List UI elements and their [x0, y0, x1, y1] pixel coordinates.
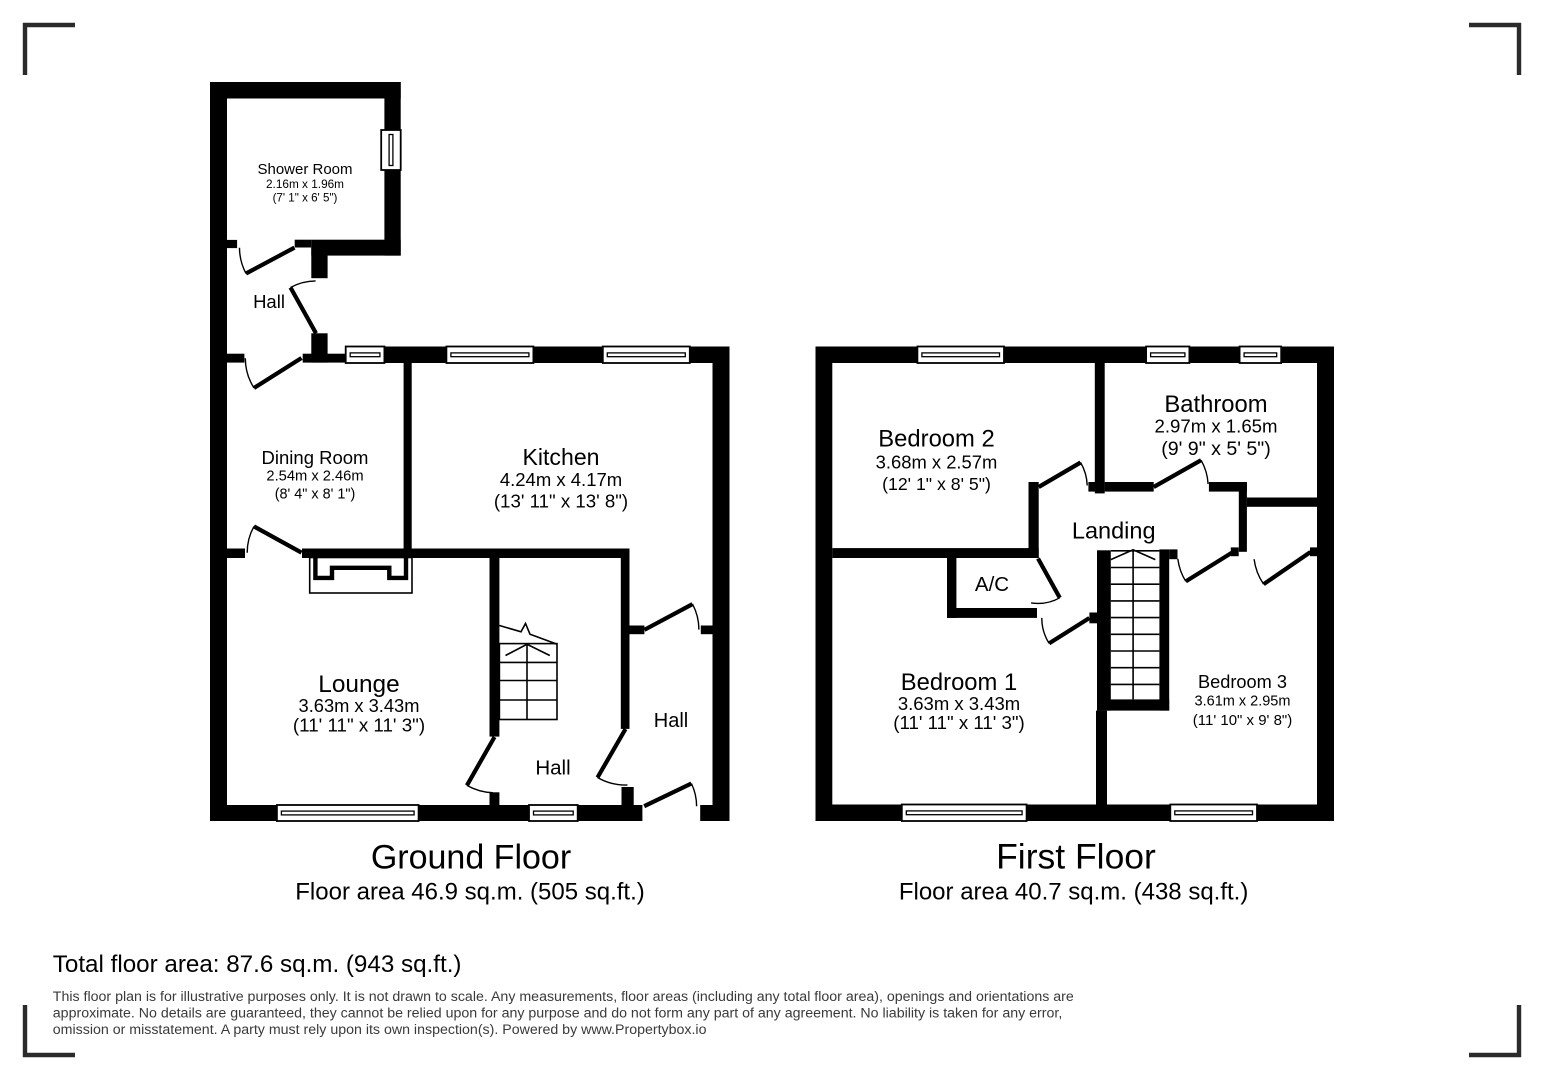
- svg-text:(12' 1" x 8' 5"): (12' 1" x 8' 5"): [882, 474, 991, 494]
- svg-text:Bedroom 3: Bedroom 3: [1198, 672, 1287, 692]
- svg-text:Bedroom 1: Bedroom 1: [901, 669, 1017, 696]
- svg-text:3.63m x 3.43m: 3.63m x 3.43m: [898, 693, 1020, 714]
- svg-text:Floor area 46.9 sq.m. (505 sq.: Floor area 46.9 sq.m. (505 sq.ft.): [295, 879, 645, 906]
- svg-text:Bathroom: Bathroom: [1164, 391, 1267, 418]
- svg-text:First Floor: First Floor: [996, 837, 1156, 877]
- svg-text:Lounge: Lounge: [318, 671, 399, 698]
- svg-text:Hall: Hall: [253, 291, 285, 312]
- svg-text:2.97m x 1.65m: 2.97m x 1.65m: [1155, 416, 1278, 437]
- svg-text:Landing: Landing: [1072, 518, 1156, 544]
- svg-text:Kitchen: Kitchen: [522, 444, 599, 470]
- svg-text:Shower Room: Shower Room: [257, 161, 352, 178]
- svg-text:(11' 11" x 11' 3"): (11' 11" x 11' 3"): [293, 715, 425, 736]
- svg-text:approximate. No details are gu: approximate. No details are guaranteed, …: [53, 1005, 1062, 1021]
- svg-text:(9' 9" x 5' 5"): (9' 9" x 5' 5"): [1161, 438, 1271, 460]
- svg-text:This floor plan is for illustr: This floor plan is for illustrative purp…: [53, 989, 1074, 1005]
- svg-text:(11' 11" x 11' 3"): (11' 11" x 11' 3"): [893, 712, 1025, 733]
- svg-text:Floor area 40.7 sq.m. (438 sq.: Floor area 40.7 sq.m. (438 sq.ft.): [899, 879, 1249, 906]
- svg-text:2.16m x 1.96m: 2.16m x 1.96m: [266, 177, 344, 191]
- svg-text:2.54m x 2.46m: 2.54m x 2.46m: [266, 469, 363, 485]
- svg-text:Bedroom 2: Bedroom 2: [878, 426, 994, 453]
- svg-text:omission or misstatement. A pa: omission or misstatement. A party must r…: [53, 1022, 707, 1038]
- svg-text:(8' 4" x 8' 1"): (8' 4" x 8' 1"): [275, 487, 356, 503]
- svg-text:4.24m x 4.17m: 4.24m x 4.17m: [500, 469, 622, 490]
- svg-text:A/C: A/C: [975, 573, 1009, 596]
- svg-text:(7' 1" x 6' 5"): (7' 1" x 6' 5"): [273, 192, 338, 205]
- svg-text:Hall: Hall: [654, 710, 688, 732]
- svg-text:(13' 11" x 13' 8"): (13' 11" x 13' 8"): [494, 491, 628, 512]
- svg-text:3.68m x 2.57m: 3.68m x 2.57m: [876, 452, 998, 473]
- svg-text:Ground Floor: Ground Floor: [371, 839, 571, 877]
- svg-text:Total floor area: 87.6 sq.m. (: Total floor area: 87.6 sq.m. (943 sq.ft.…: [53, 951, 462, 978]
- svg-text:3.63m x 3.43m: 3.63m x 3.43m: [299, 695, 420, 716]
- svg-text:(11' 10" x 9' 8"): (11' 10" x 9' 8"): [1193, 712, 1292, 729]
- svg-text:Hall: Hall: [535, 757, 570, 780]
- svg-text:3.61m x 2.95m: 3.61m x 2.95m: [1195, 694, 1291, 710]
- svg-text:Dining Room: Dining Room: [262, 447, 369, 468]
